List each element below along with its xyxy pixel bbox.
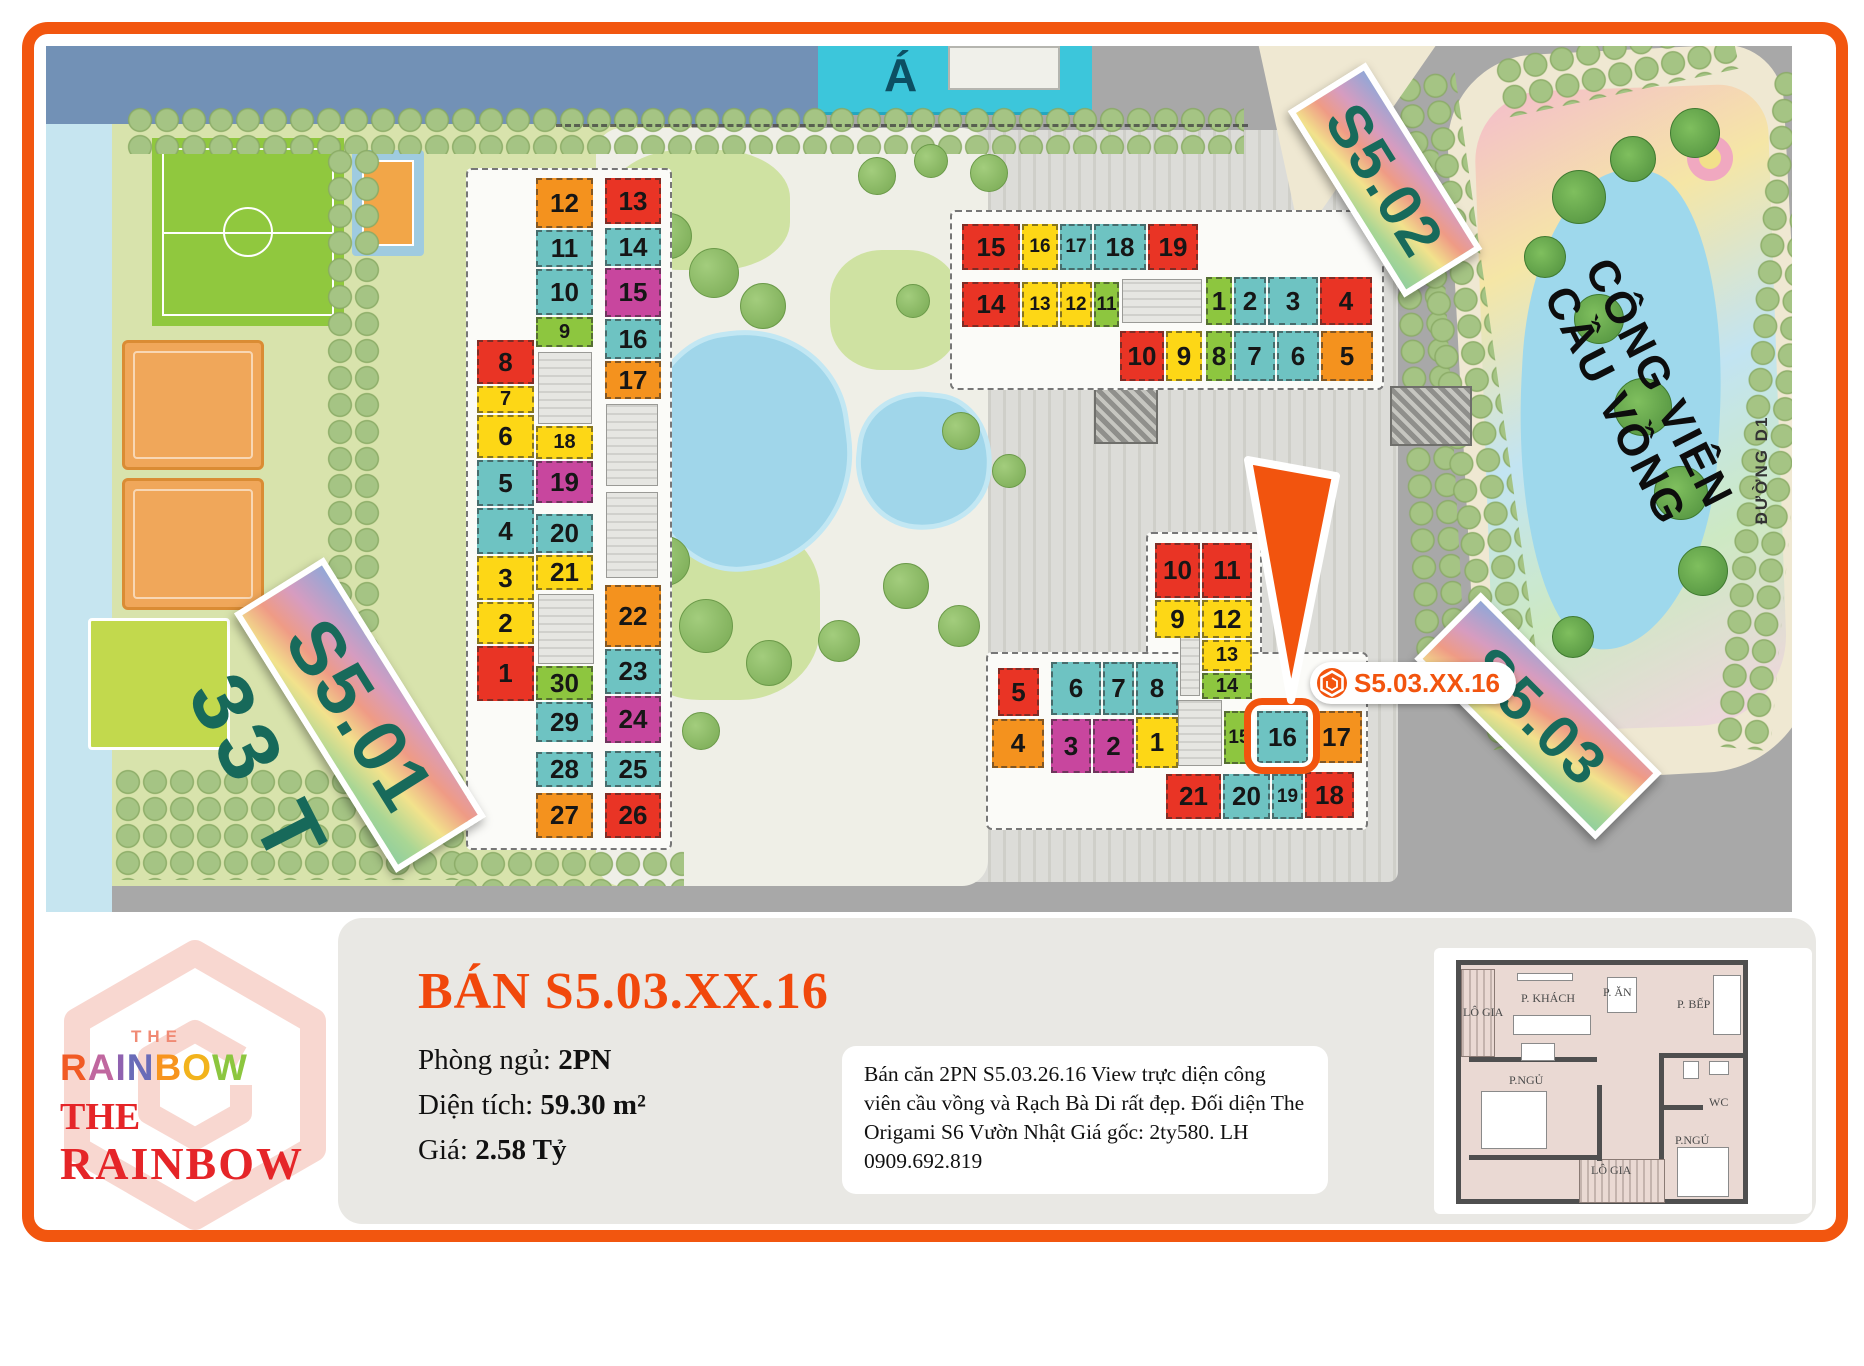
- unit-cell-s501-6: 6: [477, 415, 534, 458]
- unit-cell-s501-13: 13: [605, 178, 661, 224]
- room-label: P. KHÁCH: [1521, 991, 1575, 1006]
- interior-wall: [1597, 1085, 1602, 1161]
- palm-tree-icon: [1552, 616, 1594, 658]
- furniture: [1513, 1015, 1591, 1035]
- unit-cell-s501-3: 3: [477, 556, 534, 600]
- palm-tree-icon: [1678, 546, 1728, 596]
- unit-cell-s501-15: 15: [605, 268, 661, 317]
- small-court: [948, 46, 1060, 90]
- unit-cell-s502-4: 4: [1320, 277, 1372, 325]
- unit-cell-s501-10: 10: [536, 269, 593, 315]
- tree-icon: [938, 605, 980, 647]
- unit-cell-s502-6: 6: [1277, 331, 1319, 381]
- unit-cell-s502-3: 3: [1268, 277, 1318, 325]
- logo-the-red: THE: [60, 1095, 140, 1139]
- field-center-circle: [223, 207, 273, 257]
- lawn-patch: [830, 250, 960, 370]
- unit-cell-s502-1: 1: [1206, 277, 1232, 325]
- building-core: [606, 492, 658, 578]
- unit-cell-s503-10: 10: [1155, 543, 1200, 598]
- unit-cell-s502-5: 5: [1321, 331, 1373, 381]
- unit-cell-s501-9: 9: [536, 317, 593, 347]
- tree-row: [452, 850, 684, 886]
- unit-cell-s502-17: 17: [1060, 224, 1092, 270]
- unit-cell-s503-2: 2: [1093, 719, 1134, 773]
- unit-cell-s502-15: 15: [962, 224, 1020, 270]
- interior-wall: [1659, 1053, 1745, 1058]
- unit-cell-s502-11: 11: [1094, 282, 1119, 327]
- unit-cell-s503-6: 6: [1051, 662, 1101, 715]
- unit-cell-s503-5: 5: [998, 668, 1039, 716]
- detail-area-label: Diện tích:: [418, 1089, 540, 1121]
- logo-the-small: THE: [131, 1027, 183, 1047]
- room-label: WC: [1709, 1095, 1728, 1110]
- interior-wall: [1469, 1155, 1599, 1160]
- unit-cell-s501-23: 23: [605, 649, 661, 694]
- palm-tree-icon: [1670, 108, 1720, 158]
- room-label: LÔ GIA: [1591, 1163, 1631, 1178]
- tree-icon: [883, 563, 929, 609]
- unit-cell-s501-2: 2: [477, 602, 534, 644]
- unit-cell-s502-10: 10: [1120, 331, 1164, 381]
- tree-icon: [970, 154, 1008, 192]
- detail-bedrooms: Phòng ngủ: 2PN: [418, 1044, 611, 1077]
- unit-cell-s501-8: 8: [477, 340, 534, 384]
- palm-tree-icon: [1552, 170, 1606, 224]
- detail-price-label: Giá:: [418, 1134, 475, 1166]
- river-strip: [46, 112, 112, 912]
- rainbow-letter: I: [115, 1047, 126, 1088]
- furniture: [1713, 975, 1741, 1035]
- listing-description: Bán căn 2PN S5.03.26.16 View trực diện c…: [842, 1046, 1328, 1194]
- unit-cell-s502-18: 18: [1094, 224, 1146, 270]
- unit-cell-s502-19: 19: [1148, 224, 1198, 270]
- unit-cell-s502-12: 12: [1060, 282, 1092, 327]
- hatched-structure: [1094, 388, 1158, 444]
- rainbow-letter: N: [127, 1047, 155, 1088]
- unit-cell-s501-21: 21: [536, 555, 593, 590]
- detail-area-value: 59.30 m²: [540, 1089, 645, 1121]
- unit-cell-s501-5: 5: [477, 460, 534, 506]
- unit-cell-s501-1: 1: [477, 646, 534, 701]
- unit-cell-s502-9: 9: [1166, 331, 1202, 381]
- unit-cell-s501-30: 30: [536, 666, 593, 700]
- logo-rainbow-gradient-word: RAINBOW: [60, 1047, 248, 1089]
- callout-text: S5.03.XX.16: [1354, 668, 1500, 699]
- adjacent-building-label: Á: [884, 48, 917, 102]
- tree-row: [126, 106, 1244, 154]
- unit-cell-s501-22: 22: [605, 585, 661, 647]
- unit-cell-s502-8: 8: [1206, 331, 1232, 381]
- rainbow-letter: O: [182, 1047, 212, 1088]
- boundary-dashed-line: [556, 124, 1248, 127]
- unit-cell-s503-7: 7: [1103, 662, 1134, 715]
- tree-icon: [689, 248, 739, 298]
- unit-cell-s503-3: 3: [1051, 719, 1091, 773]
- tree-icon: [682, 712, 720, 750]
- unit-cell-s501-16: 16: [605, 319, 661, 359]
- unit-cell-s502-7: 7: [1234, 331, 1275, 381]
- building-core: [606, 404, 658, 486]
- tree-icon: [740, 283, 786, 329]
- furniture: [1709, 1061, 1729, 1075]
- logo-rainbow-red: RAINBOW: [60, 1137, 304, 1190]
- listing-title: BÁN S5.03.XX.16: [418, 962, 829, 1021]
- unit-cell-s503-19: 19: [1272, 774, 1303, 819]
- building-core: [538, 594, 594, 664]
- unit-cell-s503-20: 20: [1223, 774, 1270, 819]
- tree-icon: [914, 144, 948, 178]
- building-core: [538, 352, 592, 424]
- detail-price-value: 2.58 Tỷ: [475, 1134, 566, 1166]
- room-label: P.NGỦ: [1675, 1133, 1709, 1148]
- unit-cell-s503-9: 9: [1155, 600, 1200, 638]
- room-label: LÔ GIA: [1463, 1005, 1503, 1020]
- room-label: P. ĂN: [1603, 985, 1632, 1000]
- interior-wall: [1659, 1105, 1703, 1110]
- unit-cell-s501-28: 28: [536, 752, 593, 787]
- tree-icon: [992, 454, 1026, 488]
- unit-cell-s502-14: 14: [962, 282, 1020, 327]
- hatched-structure: [1390, 386, 1472, 446]
- football-field: [152, 138, 344, 326]
- rainbow-letter: W: [212, 1047, 248, 1088]
- unit-cell-s501-26: 26: [605, 793, 661, 838]
- unit-cell-s501-14: 14: [605, 228, 661, 266]
- rainbow-letter: B: [154, 1047, 182, 1088]
- building-core: [1122, 279, 1202, 323]
- unit-cell-s503-1: 1: [1136, 717, 1178, 768]
- unit-cell-s503-8: 8: [1136, 662, 1178, 715]
- street-name: ĐƯỜNG D1: [1752, 416, 1772, 525]
- detail-area: Diện tích: 59.30 m²: [418, 1089, 646, 1122]
- unit-cell-s502-2: 2: [1234, 277, 1266, 325]
- brand-logo: THE RAINBOW THE RAINBOW: [45, 935, 365, 1255]
- furniture: [1521, 1043, 1555, 1061]
- basketball-court: [122, 478, 264, 610]
- palm-tree-icon: [1524, 236, 1566, 278]
- tree-icon: [942, 412, 980, 450]
- unit-cell-s501-27: 27: [536, 793, 593, 838]
- unit-callout: S5.03.XX.16: [1310, 662, 1516, 704]
- detail-bedrooms-value: 2PN: [558, 1044, 611, 1076]
- building-core: [1178, 700, 1222, 766]
- unit-cell-s501-29: 29: [536, 702, 593, 742]
- detail-price: Giá: 2.58 Tỷ: [418, 1134, 567, 1167]
- furniture: [1677, 1147, 1729, 1197]
- unit-cell-s502-16: 16: [1022, 224, 1058, 270]
- listing-info-panel: BÁN S5.03.XX.16 Phòng ngủ: 2PN Diện tích…: [338, 918, 1816, 1224]
- unit-cell-s501-24: 24: [605, 696, 661, 743]
- unit-cell-s502-13: 13: [1022, 282, 1058, 327]
- detail-bedrooms-label: Phòng ngủ:: [418, 1044, 558, 1076]
- tree-icon: [679, 599, 733, 653]
- floorplan-box: LÔ GIAP. KHÁCHP. ĂNP. BẾPP.NGỦWCP.NGỦLÔ …: [1434, 948, 1812, 1214]
- rainbow-letter: R: [60, 1047, 88, 1088]
- furniture: [1481, 1091, 1547, 1149]
- palm-tree-icon: [1610, 136, 1656, 182]
- unit-cell-s501-18: 18: [536, 426, 593, 459]
- basketball-court: [122, 340, 264, 470]
- unit-cell-s501-7: 7: [477, 386, 534, 413]
- tree-icon: [746, 640, 792, 686]
- room-label: P.NGỦ: [1509, 1073, 1543, 1088]
- site-plan: Á: [46, 46, 1792, 912]
- unit-cell-s503-21: 21: [1166, 774, 1221, 819]
- unit-cell-s501-17: 17: [605, 361, 661, 399]
- listing-graphic: Á: [0, 0, 1864, 1366]
- unit-cell-s501-20: 20: [536, 514, 593, 553]
- unit-cell-s503-4: 4: [992, 719, 1044, 768]
- floorplan-drawing: LÔ GIAP. KHÁCHP. ĂNP. BẾPP.NGỦWCP.NGỦLÔ …: [1456, 960, 1748, 1204]
- unit-cell-s501-25: 25: [605, 751, 661, 787]
- tree-icon: [858, 157, 896, 195]
- room-label: P. BẾP: [1677, 997, 1710, 1012]
- rainbow-letter: A: [88, 1047, 116, 1088]
- furniture: [1683, 1061, 1699, 1079]
- unit-cell-s503-18: 18: [1305, 772, 1354, 818]
- tree-icon: [896, 284, 930, 318]
- brand-hexagon-icon: [1317, 668, 1347, 698]
- unit-cell-s501-19: 19: [536, 461, 593, 503]
- unit-cell-s501-11: 11: [536, 230, 593, 267]
- unit-cell-s501-4: 4: [477, 508, 534, 554]
- furniture: [1517, 973, 1573, 981]
- tree-icon: [818, 620, 860, 662]
- unit-cell-s501-12: 12: [536, 178, 593, 228]
